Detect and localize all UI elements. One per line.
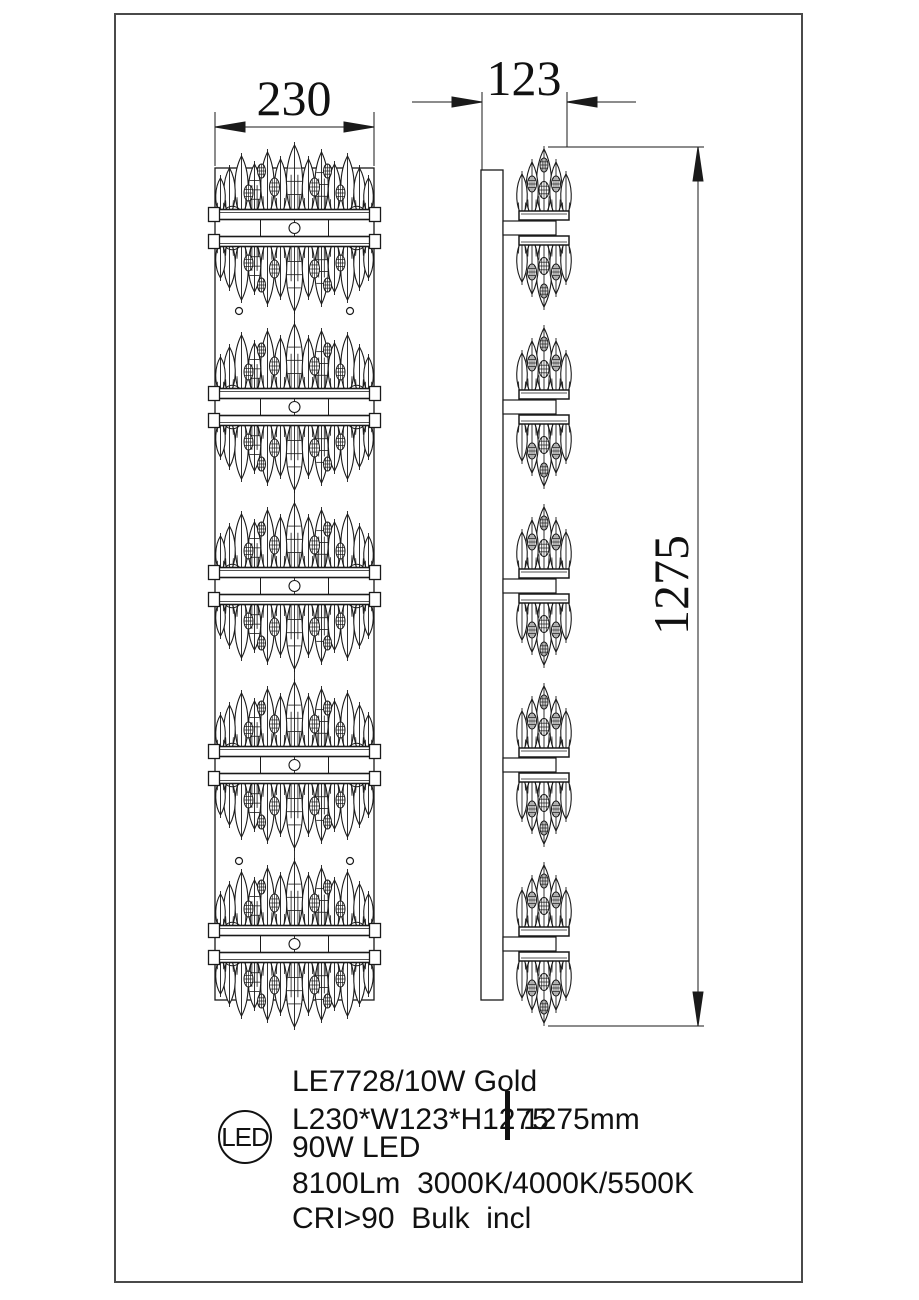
- side-view-crystal-clusters: [503, 146, 571, 1026]
- screw-hole: [347, 858, 354, 865]
- arrowhead-inward-left: [567, 97, 597, 107]
- dim-depth-label: 123: [487, 50, 562, 106]
- side-wall-bar: [481, 170, 503, 1000]
- led-badge-label: LED: [221, 1122, 269, 1153]
- led-badge: LED: [218, 1110, 272, 1164]
- spec-output: 8100Lm 3000K/4000K/5500K: [292, 1168, 694, 1200]
- arrowhead-down: [693, 992, 703, 1026]
- screw-hole: [236, 858, 243, 865]
- dim-width-label: 230: [257, 70, 332, 126]
- arrowhead-inward-right: [452, 97, 482, 107]
- crystal-cluster-side: [503, 683, 571, 847]
- screw-hole: [236, 308, 243, 315]
- spec-cri: CRI>90 Bulk incl: [292, 1203, 531, 1235]
- arrowhead-up: [693, 147, 703, 181]
- spec-model: LE7728/10W Gold: [292, 1066, 537, 1098]
- arrowhead-left: [215, 122, 245, 132]
- drawing-page: 230 123 1275 LE7728/10W Gold L230*W123*H…: [0, 0, 919, 1300]
- dim-height-label: 1275: [643, 535, 699, 635]
- crystal-cluster-side: [503, 862, 571, 1026]
- spec-power: 90W LED: [292, 1132, 420, 1164]
- spec-divider: [505, 1091, 510, 1140]
- screw-hole: [347, 308, 354, 315]
- crystal-cluster-side: [503, 146, 571, 310]
- crystal-cluster-side: [503, 325, 571, 489]
- spec-drop: 1275mm: [523, 1104, 640, 1136]
- arrowhead-right: [344, 122, 374, 132]
- crystal-cluster-side: [503, 504, 571, 668]
